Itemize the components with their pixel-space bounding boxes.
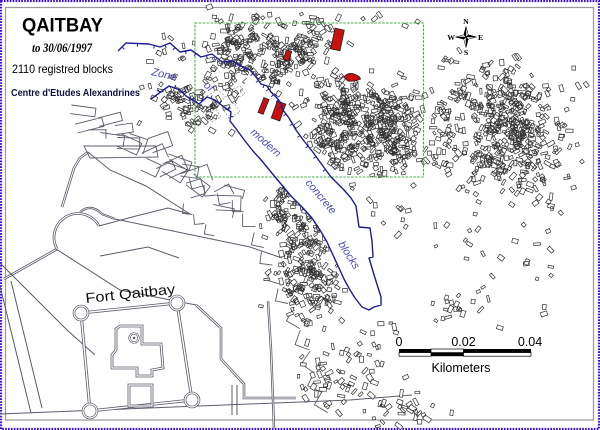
svg-text:Kilometers: Kilometers xyxy=(432,360,491,375)
svg-text:to 30/06/1997: to 30/06/1997 xyxy=(32,41,93,55)
svg-text:0.04: 0.04 xyxy=(518,335,542,349)
svg-text:2110 registred blocks: 2110 registred blocks xyxy=(12,62,113,76)
svg-text:Centre d'Etudes Alexandrines: Centre d'Etudes Alexandrines xyxy=(11,88,140,99)
svg-text:S: S xyxy=(464,48,468,57)
svg-text:0.02: 0.02 xyxy=(451,335,475,349)
svg-text:N: N xyxy=(463,17,469,26)
svg-text:QAITBAY: QAITBAY xyxy=(22,15,103,37)
svg-text:W: W xyxy=(447,33,455,42)
svg-text:0: 0 xyxy=(396,335,403,349)
svg-text:E: E xyxy=(478,33,483,42)
